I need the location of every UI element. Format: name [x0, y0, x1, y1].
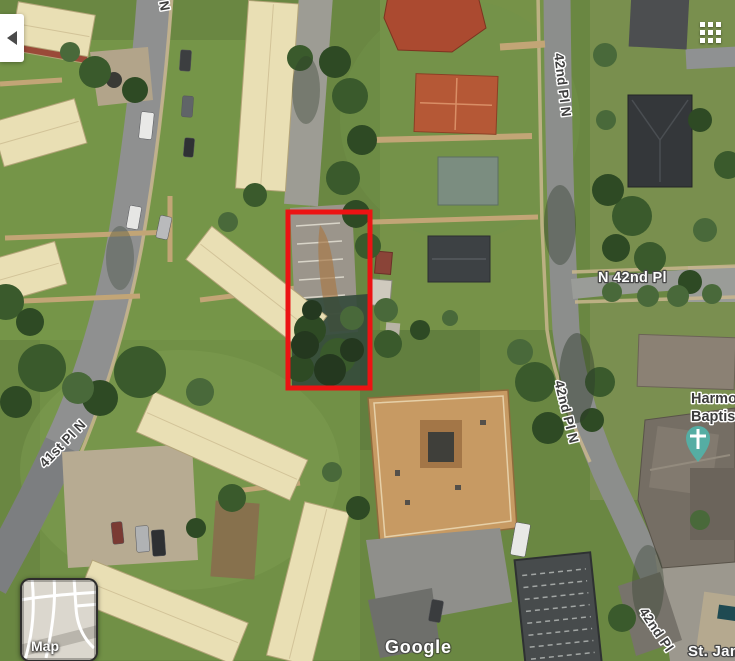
- poi-label-harmony[interactable]: Harmony: [691, 391, 735, 407]
- dark-building: [515, 552, 603, 661]
- back-arrow-icon: [7, 31, 17, 45]
- commercial-building: [368, 390, 517, 545]
- map-type-toggle[interactable]: Map: [20, 578, 98, 661]
- satellite-imagery[interactable]: N 42nd Pl N N 42nd Pl 42nd Pl N 41st Pl …: [0, 0, 735, 661]
- apps-grid-icon[interactable]: [700, 22, 721, 43]
- back-button[interactable]: [0, 14, 24, 62]
- poi-label-st-james[interactable]: St. James: [688, 643, 735, 660]
- map-toggle-label: Map: [31, 638, 59, 654]
- poi-label-baptist[interactable]: Baptist: [691, 409, 735, 425]
- street-label-n-42nd-pl: N 42nd Pl: [598, 270, 667, 286]
- google-watermark: Google: [385, 637, 452, 657]
- satellite-map-view[interactable]: N 42nd Pl N N 42nd Pl 42nd Pl N 41st Pl …: [0, 0, 735, 661]
